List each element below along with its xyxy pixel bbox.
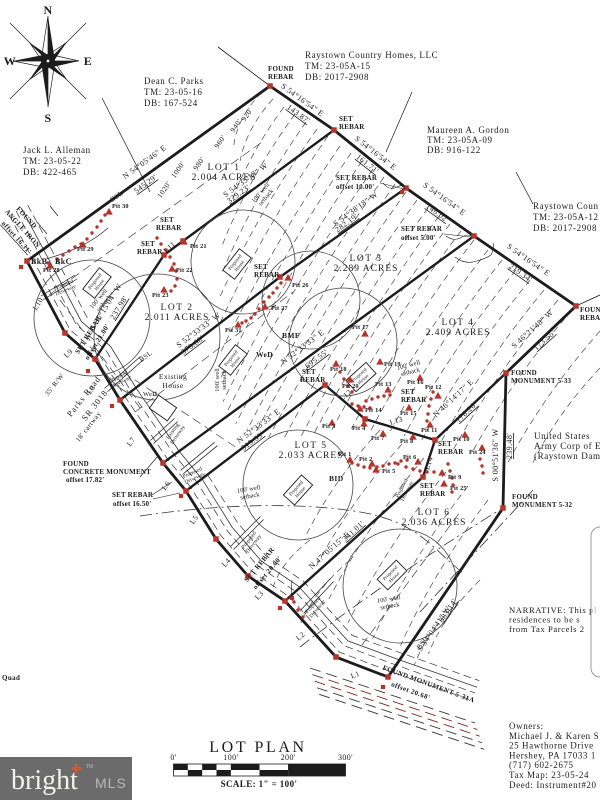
svg-text:REBAR: REBAR bbox=[580, 314, 600, 322]
svg-text:SET REBAR: SET REBAR bbox=[336, 174, 378, 182]
svg-text:setback: setback bbox=[221, 370, 228, 390]
svg-text:Army Corp of E: Army Corp of E bbox=[534, 441, 600, 451]
svg-text:Pit 25: Pit 25 bbox=[450, 485, 467, 492]
svg-text:REBAR: REBAR bbox=[300, 376, 326, 384]
svg-text:Pit 6: Pit 6 bbox=[403, 454, 416, 461]
svg-text:LOT 6: LOT 6 bbox=[418, 508, 451, 518]
svg-text:DB: 916-122: DB: 916-122 bbox=[427, 145, 481, 155]
svg-text:25 Hawthorne Drive: 25 Hawthorne Drive bbox=[509, 741, 594, 751]
svg-text:2.036 ACRES: 2.036 ACRES bbox=[402, 518, 467, 528]
svg-text:REBAR: REBAR bbox=[268, 73, 294, 81]
svg-text:from Tax Parcels 2: from Tax Parcels 2 bbox=[509, 624, 585, 634]
svg-text:Pit 8: Pit 8 bbox=[400, 438, 413, 445]
svg-text:2.004 ACRES: 2.004 ACRES bbox=[192, 173, 257, 183]
svg-text:DB: 2017-2908: DB: 2017-2908 bbox=[305, 72, 369, 82]
svg-text:Pit 17: Pit 17 bbox=[352, 324, 369, 331]
svg-text:DB: 2017-2908: DB: 2017-2908 bbox=[533, 223, 597, 233]
svg-text:BMF: BMF bbox=[282, 331, 300, 340]
svg-text:Pit 18: Pit 18 bbox=[330, 366, 347, 373]
svg-text:Pit 23: Pit 23 bbox=[152, 292, 169, 299]
svg-text:SET REBAR: SET REBAR bbox=[112, 491, 154, 499]
svg-text:Pit 26: Pit 26 bbox=[292, 282, 309, 289]
svg-text:(Raystown Dam: (Raystown Dam bbox=[534, 451, 600, 461]
svg-text:MONUMENT 5-32: MONUMENT 5-32 bbox=[512, 501, 573, 509]
svg-text:N: N bbox=[43, 3, 52, 17]
svg-text:TM: 23-05A-12: TM: 23-05A-12 bbox=[533, 212, 599, 222]
svg-text:2.409 ACRES: 2.409 ACRES bbox=[426, 328, 491, 338]
svg-text:Owners:: Owners: bbox=[509, 721, 544, 731]
svg-text:Deed: Instrument#20: Deed: Instrument#20 bbox=[509, 780, 597, 790]
svg-text:SET: SET bbox=[420, 482, 434, 490]
svg-text:Pit 24: Pit 24 bbox=[469, 449, 486, 456]
svg-text:Pit 10: Pit 10 bbox=[453, 436, 470, 443]
svg-text:FOUND: FOUND bbox=[580, 306, 600, 314]
svg-text:Pit 2: Pit 2 bbox=[359, 456, 372, 463]
svg-text:LOT 1: LOT 1 bbox=[208, 163, 241, 173]
svg-text:MONUMENT 5-33: MONUMENT 5-33 bbox=[511, 377, 572, 385]
svg-text:(717) 602-2675: (717) 602-2675 bbox=[509, 760, 574, 770]
svg-text:Pit 22: Pit 22 bbox=[176, 267, 193, 274]
svg-text:WeD: WeD bbox=[256, 350, 273, 359]
svg-text:Pit 14: Pit 14 bbox=[365, 407, 382, 414]
svg-text:DB: 167-524: DB: 167-524 bbox=[144, 98, 198, 108]
svg-text:SET: SET bbox=[401, 388, 415, 396]
svg-text:REBAR: REBAR bbox=[420, 490, 446, 498]
svg-text:W: W bbox=[4, 54, 16, 68]
svg-text:offset 17.82': offset 17.82' bbox=[66, 476, 104, 484]
svg-text:MLS: MLS bbox=[95, 775, 127, 791]
svg-text:TM: 23-05A-15: TM: 23-05A-15 bbox=[305, 61, 371, 71]
svg-text:SET: SET bbox=[141, 240, 155, 248]
svg-text:Pit 7: Pit 7 bbox=[371, 435, 384, 442]
svg-text:S 00°51'36" W: S 00°51'36" W bbox=[491, 428, 500, 481]
svg-text:REBAR: REBAR bbox=[438, 448, 464, 456]
svg-text:Pit 31: Pit 31 bbox=[225, 327, 242, 334]
svg-text:Pit 5: Pit 5 bbox=[382, 468, 395, 475]
svg-text:SET: SET bbox=[160, 216, 174, 224]
svg-text:REBAR: REBAR bbox=[339, 123, 365, 131]
svg-text:100': 100' bbox=[223, 753, 238, 762]
svg-text:Pit 29: Pit 29 bbox=[77, 246, 94, 253]
svg-text:LOT 5: LOT 5 bbox=[295, 441, 328, 451]
svg-text:Dean C. Parks: Dean C. Parks bbox=[144, 76, 204, 86]
svg-text:Hershey, PA 17033 1: Hershey, PA 17033 1 bbox=[509, 750, 596, 760]
svg-text:Jack L. Alleman: Jack L. Alleman bbox=[23, 145, 91, 155]
svg-text:2.033 ACRES: 2.033 ACRES bbox=[279, 451, 344, 461]
svg-text:S: S bbox=[44, 111, 51, 125]
svg-text:LOT 2: LOT 2 bbox=[161, 303, 194, 313]
svg-text:FOUND: FOUND bbox=[512, 493, 538, 501]
svg-text:Pit 21: Pit 21 bbox=[190, 243, 207, 250]
svg-text:200': 200' bbox=[281, 753, 296, 762]
svg-text:Pit 27: Pit 27 bbox=[271, 305, 288, 312]
svg-text:SET: SET bbox=[339, 115, 353, 123]
svg-text:Pit 16: Pit 16 bbox=[407, 379, 424, 386]
svg-text:BID: BID bbox=[329, 474, 344, 483]
svg-text:SCALE: 1" = 100': SCALE: 1" = 100' bbox=[221, 779, 298, 789]
svg-text:Pit 15: Pit 15 bbox=[400, 410, 417, 417]
svg-text:Raystown Country Homes, LLC: Raystown Country Homes, LLC bbox=[305, 50, 438, 60]
svg-text:Pit 28: Pit 28 bbox=[43, 267, 60, 274]
svg-text:United States: United States bbox=[534, 431, 590, 441]
svg-text:Existing: Existing bbox=[159, 372, 187, 381]
svg-text:DB: 422-465: DB: 422-465 bbox=[23, 167, 77, 177]
svg-text:Pit 30: Pit 30 bbox=[112, 203, 129, 210]
svg-text:FOUND: FOUND bbox=[268, 65, 294, 73]
svg-text:Tax Map: 23-05-24: Tax Map: 23-05-24 bbox=[509, 770, 589, 780]
svg-text:SET REBAR: SET REBAR bbox=[401, 225, 443, 233]
svg-text:TM: TM bbox=[86, 764, 93, 770]
svg-text:Pit 9: Pit 9 bbox=[448, 474, 461, 481]
svg-text:Michael J. & Karen S: Michael J. & Karen S bbox=[509, 731, 599, 741]
svg-text:TM: 23-05-22: TM: 23-05-22 bbox=[23, 156, 81, 166]
svg-text:Maureen A. Gordon: Maureen A. Gordon bbox=[427, 125, 509, 135]
svg-text:FOUND: FOUND bbox=[63, 460, 89, 468]
svg-text:CONCRETE MONUMENT: CONCRETE MONUMENT bbox=[63, 468, 151, 476]
svg-text:bright: bright bbox=[11, 765, 78, 796]
svg-text:House: House bbox=[162, 381, 183, 390]
svg-text:TM: 23-05A-09: TM: 23-05A-09 bbox=[427, 135, 493, 145]
svg-text:239.48': 239.48' bbox=[505, 433, 514, 459]
svg-text:REBAR: REBAR bbox=[156, 224, 182, 232]
svg-text:SET: SET bbox=[438, 440, 452, 448]
svg-text:TM: 23-05-16: TM: 23-05-16 bbox=[144, 87, 202, 97]
svg-text:offset 16.50': offset 16.50' bbox=[113, 500, 151, 508]
svg-text:E: E bbox=[84, 54, 92, 68]
svg-text:100' well: 100' well bbox=[214, 368, 221, 392]
svg-text:Pit 12: Pit 12 bbox=[425, 384, 442, 391]
svg-text:BkC: BkC bbox=[55, 257, 72, 266]
svg-text:Pit 4: Pit 4 bbox=[352, 425, 366, 432]
svg-text:REBAR: REBAR bbox=[401, 396, 427, 404]
svg-text:SET: SET bbox=[254, 263, 268, 271]
svg-text:LOT 4: LOT 4 bbox=[442, 318, 475, 328]
svg-text:REBAR: REBAR bbox=[137, 248, 163, 256]
svg-text:offset 5.00': offset 5.00' bbox=[401, 234, 436, 242]
svg-text:2.011 ACRES: 2.011 ACRES bbox=[145, 313, 210, 323]
svg-text:offset 10.00': offset 10.00' bbox=[336, 183, 374, 191]
svg-text:2.289 ACRES: 2.289 ACRES bbox=[334, 264, 399, 274]
svg-text:300': 300' bbox=[338, 753, 353, 762]
svg-text:REBAR: REBAR bbox=[254, 271, 280, 279]
svg-text:0': 0' bbox=[170, 753, 176, 762]
svg-text:Quad: Quad bbox=[2, 674, 20, 682]
svg-text:FOUND: FOUND bbox=[511, 369, 537, 377]
svg-text:LOT 3: LOT 3 bbox=[350, 254, 383, 264]
svg-text:Pit 13: Pit 13 bbox=[375, 381, 392, 388]
svg-text:BkB: BkB bbox=[31, 257, 48, 266]
svg-text:Pit 3: Pit 3 bbox=[322, 423, 335, 430]
svg-text:SET: SET bbox=[302, 368, 316, 376]
svg-text:Pit 11: Pit 11 bbox=[421, 427, 437, 434]
svg-text:Raystown Coun: Raystown Coun bbox=[533, 201, 599, 211]
